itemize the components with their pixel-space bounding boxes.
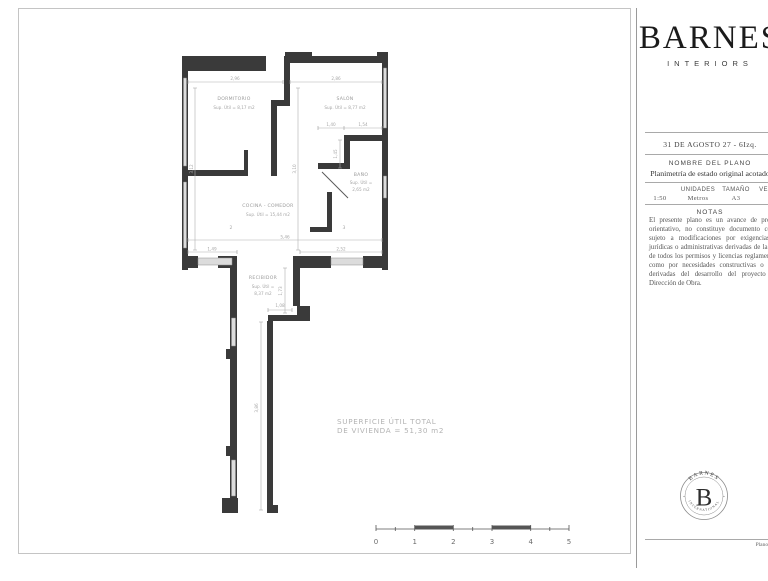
dim-label: 1,08 xyxy=(275,303,285,308)
meta-value-tamano: A3 xyxy=(717,195,755,202)
meta-value-unidades: Metros xyxy=(679,195,717,202)
notes-text: El presente plano es un avance de proyec… xyxy=(649,216,768,288)
meta-table-headers: UNIDADES TAMAÑO VERSIÓN xyxy=(641,187,768,193)
meta-header-tamano: TAMAÑO xyxy=(717,187,755,193)
dim-label: 1,49 xyxy=(207,247,217,252)
room-area-dormitorio: Sup. Útil = 8,17 m2 xyxy=(213,105,255,110)
dim-label: 3,12 xyxy=(189,164,194,174)
room-area-bano: Sup. Útil = xyxy=(350,180,373,185)
dim-label: 1,45 xyxy=(333,149,338,159)
room-label-bano: BAÑO xyxy=(354,171,369,178)
dim-label: 2,96 xyxy=(230,76,240,81)
meta-value-version: 01 xyxy=(755,195,768,202)
room-area-cocina: Sup. Útil = 15,44 m2 xyxy=(246,212,290,217)
brand-logo: BARNES xyxy=(637,20,768,57)
room-area-bano: 2,65 m2 xyxy=(352,187,370,192)
room-label-cocina: COCINA - COMEDOR xyxy=(242,203,294,209)
total-area-line1: SUPERFICIE ÚTIL TOTAL xyxy=(337,417,436,426)
divider xyxy=(645,154,768,155)
divider xyxy=(645,204,768,205)
meta-header-unidades: UNIDADES xyxy=(679,187,717,193)
scale-tick-label: 2 xyxy=(451,538,455,546)
room-number: 2 xyxy=(230,225,233,231)
meta-table-values: 1:50 Metros A3 01 xyxy=(641,195,768,202)
brand-sublogo: INTERIORS xyxy=(637,59,768,68)
divider xyxy=(645,539,768,540)
scale-tick-label: 4 xyxy=(528,538,533,546)
plan-name: Planimetría de estado original acotado xyxy=(637,169,768,178)
dim-label: 3,10 xyxy=(292,164,297,174)
dim-label: 3,86 xyxy=(254,403,259,413)
dimension-lines xyxy=(188,82,382,510)
room-label-dormitorio: DORMITORIO xyxy=(217,96,250,102)
project-address: 31 DE AGOSTO 27 - 6Izq. xyxy=(637,140,768,149)
room-area-salon: Sup. Útil = 8,77 m2 xyxy=(324,105,366,110)
dim-label: 5,46 xyxy=(280,235,290,240)
scale-tick-label: 3 xyxy=(490,538,494,546)
room-label-salon: SALÓN xyxy=(336,95,353,102)
meta-value-escala: 1:50 xyxy=(641,195,679,202)
plan-name-label: NOMBRE DEL PLANO xyxy=(637,160,768,167)
room-number: 3 xyxy=(343,225,346,231)
scale-tick-label: 0 xyxy=(374,538,378,546)
total-area-line2: DE VIVIENDA = 51,30 m2 xyxy=(337,426,444,435)
notes-label: NOTAS xyxy=(637,209,768,216)
scale-tick-label: 5 xyxy=(567,538,571,546)
meta-header-escala xyxy=(641,187,679,193)
room-area-recibidor: 8,37 m2 xyxy=(254,291,272,296)
dim-label: 1,40 xyxy=(326,122,336,127)
title-block: BARNES INTERIORS 31 DE AGOSTO 27 - 6Izq.… xyxy=(636,8,768,568)
dim-label: 2,86 xyxy=(331,76,341,81)
room-label-recibidor: RECIBIDOR xyxy=(249,275,278,281)
sheet-border xyxy=(19,9,631,554)
scale-bar: 0 1 2 3 4 5 xyxy=(374,525,571,546)
door-swing-line xyxy=(322,172,348,198)
scale-tick-label: 1 xyxy=(412,538,416,546)
dim-label: 2,52 xyxy=(336,247,346,252)
sheet-footer: Plano 01 xyxy=(649,542,768,548)
dim-label: 1,54 xyxy=(358,122,368,127)
divider xyxy=(645,182,768,183)
meta-header-version: VERSIÓN xyxy=(755,187,768,193)
dim-label: 1,73 xyxy=(278,286,283,296)
divider xyxy=(645,132,768,133)
room-area-recibidor: Sup. Útil = xyxy=(252,284,275,289)
